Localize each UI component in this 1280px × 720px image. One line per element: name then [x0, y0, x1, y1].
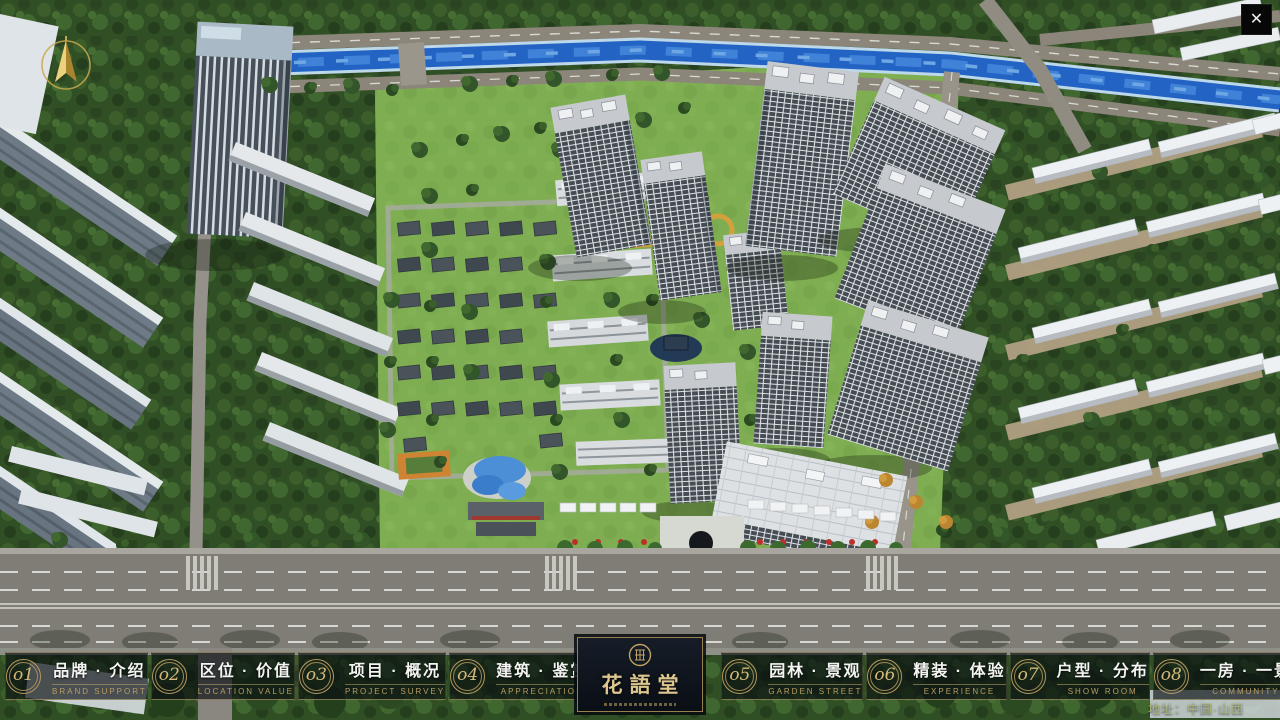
- nav-item-interior-experience[interactable]: o6 精装 · 体验EXPERIENCE: [866, 652, 1006, 700]
- nav-number-badge: o6: [867, 659, 902, 694]
- nav-item-title: 品牌 · 介绍: [53, 657, 145, 681]
- nav-item-title: 区位 · 价值: [200, 657, 292, 681]
- project-name: 花語堂: [595, 669, 686, 699]
- presentation-app: ✕ o1 品牌 · 介绍BRAND SUPPORT o2 区位 · 价值LOCA…: [0, 0, 1280, 720]
- nav-item-subtitle: COMMUNITY: [1200, 684, 1280, 696]
- nav-item-title: 精装 · 体验: [913, 657, 1005, 681]
- nav-item-subtitle: SHOW ROOM: [1057, 684, 1149, 696]
- nav-item-architecture[interactable]: o4 建筑 · 鉴赏APPRECIATION: [449, 652, 589, 700]
- close-button[interactable]: ✕: [1241, 4, 1272, 35]
- aerial-masterplan-render[interactable]: [0, 0, 1280, 720]
- nav-item-subtitle: APPRECIATION: [496, 684, 588, 696]
- logo-tagline: [604, 703, 676, 706]
- nav-number-badge: o1: [6, 659, 41, 694]
- seal-icon: [628, 643, 652, 667]
- nav-number-badge: o2: [152, 659, 187, 694]
- nav-item-brand-intro[interactable]: o1 品牌 · 介绍BRAND SUPPORT: [5, 652, 148, 700]
- project-logo-panel[interactable]: 花語堂: [577, 637, 703, 712]
- nav-number-badge: o5: [722, 659, 757, 694]
- nav-item-unit-distribution[interactable]: o7 户型 · 分布SHOW ROOM: [1010, 652, 1150, 700]
- nav-item-title: 项目 · 概况: [349, 657, 441, 681]
- nav-item-location-value[interactable]: o2 区位 · 价值LOCATION VALUE: [151, 652, 295, 700]
- nav-number-badge: o3: [299, 659, 334, 694]
- nav-item-title: 一房 · 一景: [1200, 657, 1280, 681]
- nav-item-room-view[interactable]: o8 一房 · 一景COMMUNITY: [1153, 652, 1280, 700]
- nav-number-badge: o8: [1154, 659, 1189, 694]
- nav-item-garden-landscape[interactable]: o5 园林 · 景观GARDEN STREET: [721, 652, 863, 700]
- nav-item-subtitle: GARDEN STREET: [768, 684, 862, 696]
- nav-item-project-survey[interactable]: o3 项目 · 概况PROJECT SURVEY: [298, 652, 446, 700]
- nav-item-subtitle: LOCATION VALUE: [198, 684, 294, 696]
- nav-item-subtitle: PROJECT SURVEY: [345, 684, 445, 696]
- nav-item-subtitle: EXPERIENCE: [913, 684, 1005, 696]
- nav-item-subtitle: BRAND SUPPORT: [52, 684, 147, 696]
- nav-item-title: 建筑 · 鉴赏: [496, 657, 588, 681]
- nav-item-title: 户型 · 分布: [1057, 657, 1149, 681]
- nav-item-title: 园林 · 景观: [769, 657, 861, 681]
- project-address: 地址：中国·山西: [1148, 700, 1244, 717]
- nav-number-badge: o7: [1011, 659, 1046, 694]
- nav-number-badge: o4: [450, 659, 485, 694]
- compass-icon: [36, 32, 96, 94]
